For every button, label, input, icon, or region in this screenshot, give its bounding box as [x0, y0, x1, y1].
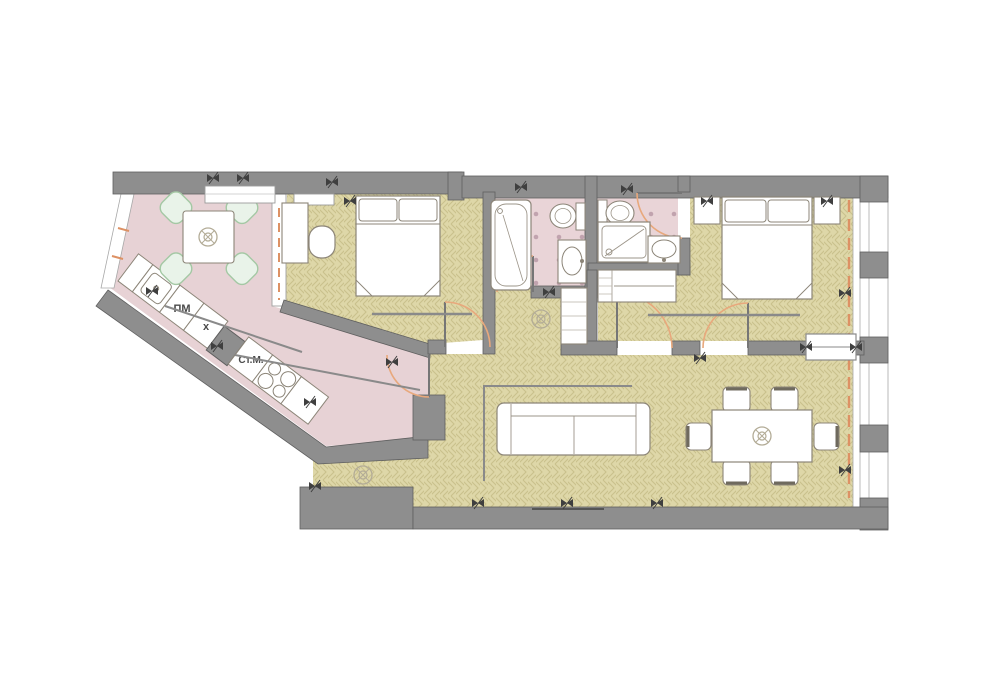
wall-bottom-main — [413, 507, 888, 529]
double-bed-1 — [356, 196, 440, 296]
pillow — [768, 200, 809, 222]
sliding-door-bedroom-2 — [806, 334, 856, 360]
toilet-1 — [550, 203, 585, 230]
wall-nook-left — [587, 270, 597, 350]
chair — [771, 460, 798, 485]
wall-top-left — [113, 172, 462, 194]
wall-bedroom1-bottom — [428, 340, 446, 354]
wall-hall-end-block — [413, 395, 445, 440]
wall-bath2-right-top — [678, 176, 690, 192]
hob-label: x — [203, 321, 210, 333]
kitchen-wall-cabinet — [205, 186, 275, 203]
desk — [282, 203, 308, 263]
floor-plan-canvas: ПМ x Ст.М. — [0, 0, 993, 700]
chair — [686, 423, 711, 450]
floor-plan-drawing: ПМ x Ст.М. — [0, 0, 993, 700]
wall-bedroom2-living-b — [672, 341, 700, 355]
pillow — [725, 200, 766, 222]
washbasin-2 — [648, 236, 680, 263]
pillow — [359, 199, 397, 221]
chair — [771, 387, 798, 412]
wall-bottom-left — [300, 487, 413, 529]
sofa — [497, 403, 650, 455]
wall-pier-4 — [860, 425, 888, 452]
wardrobe-nook-cabinet — [598, 270, 676, 302]
bathtub — [491, 200, 531, 290]
chair — [723, 387, 750, 412]
shower-cabin — [598, 222, 650, 262]
washbasin-1 — [558, 240, 586, 283]
chair — [814, 423, 839, 450]
desk-chair — [309, 226, 335, 258]
chair — [723, 460, 750, 485]
wall-bedroom2-living-c — [748, 341, 806, 355]
double-bed-2 — [722, 197, 812, 299]
lobby-cabinet — [561, 288, 587, 344]
wall-pier-1 — [860, 176, 888, 202]
pillow — [399, 199, 437, 221]
wall-pier-2 — [860, 252, 888, 278]
